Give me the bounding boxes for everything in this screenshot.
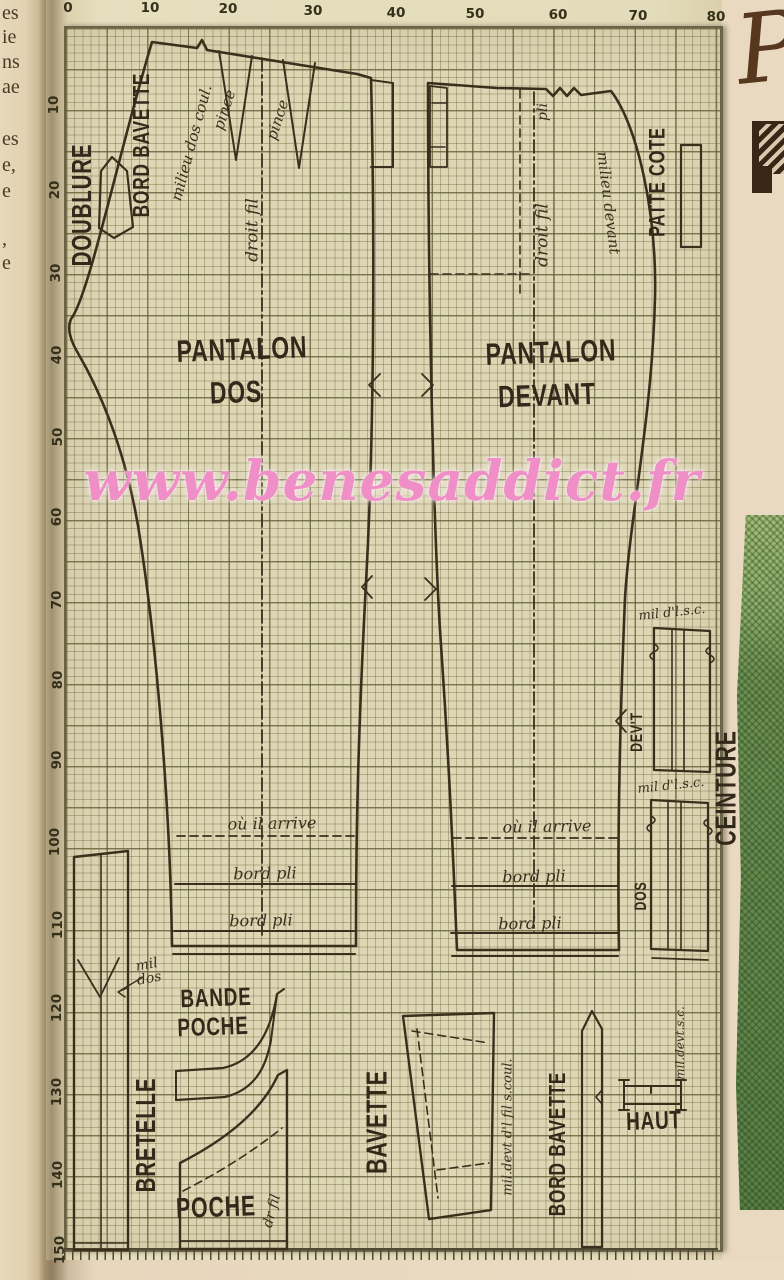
devant-tab-ticks [431,103,446,147]
ruler-left-70: 70 [49,591,65,610]
label-pli: pli [536,103,550,121]
devant-waist-tab [430,86,447,167]
label-bord-bavette-top: BORD BAVETTE [130,73,154,217]
label-mil-devt-coul: mil.devt d'l fil s.coul. [501,1058,514,1195]
label-bord-pli-devant-1: bord pli [502,868,566,885]
ruler-top-30: 30 [304,3,323,19]
label-mil-dos: mil dos [133,956,162,988]
ceinture-dos-inner [668,801,681,950]
label-pantalon-dos-2: DOS [209,376,262,409]
label-doublure: DOUBLURE [69,144,97,267]
page-fragment-3: ae [2,76,20,99]
ruler-left-30: 30 [48,264,64,283]
ruler-left-40: 40 [49,346,65,365]
label-bord-bavette-bottom: BORD BAVETTE [546,1072,570,1216]
ceinture-devant-piece [654,628,710,772]
scanned-pattern-page: Pr DOUBLUREBORD BAVETTEmilieu dos coul.p… [0,0,784,1280]
page-fragment-7: , [2,228,7,251]
label-bord-pli-devant-2: bord pli [498,915,562,932]
watermark-text: www.benesaddict.fr [0,448,784,513]
ceinture-dos-hem [652,958,708,960]
bavette-dash-2 [412,1031,489,1043]
label-pantalon-dos-1: PANTALON [176,332,308,368]
ruler-left-100: 100 [47,828,63,856]
ruler-left-80: 80 [50,671,66,690]
ceinture-dos-notches [647,816,712,835]
label-devt: DEV'T [629,712,646,752]
ruler-left-90: 90 [49,751,65,770]
ruler-top-70: 70 [629,8,648,24]
bretelle-notch [78,958,119,997]
bord-bavette-strip [582,1011,602,1247]
ruler-top-0: 0 [63,0,72,16]
label-bretelle: BRETELLE [133,1078,161,1193]
label-ou-il-arrive-dos: où il arrive [227,815,316,833]
ruler-top-80: 80 [707,9,726,25]
label-pantalon-devant-1: PANTALON [485,335,617,371]
ruler-top-50: 50 [466,6,485,22]
page-fragment-1: ie [2,26,16,49]
ruler-top-20: 20 [219,1,238,17]
label-droit-fil-devant: droit fil [534,203,551,267]
ruler-left-10: 10 [46,96,62,115]
label-mil-devt-sc: mil.devt.s.c. [674,1006,686,1080]
patte-cote-piece [681,145,701,247]
page-fragment-0: es [2,2,19,25]
ruler-top-10: 10 [141,0,160,16]
label-droit-fil-dos: droit fil [244,198,261,262]
ruler-left-130: 130 [49,1078,65,1106]
label-dos-ceinture: DOS [633,881,650,910]
label-bord-pli-dos-2: bord pli [229,912,293,929]
label-bavette: BAVETTE [362,1070,391,1174]
bavette-dash-3 [437,1163,489,1170]
dos-side-tab [371,80,393,167]
ceinture-devant-notches [650,644,714,663]
ruler-left-150: 150 [52,1236,68,1264]
label-pantalon-devant-2: DEVANT [498,379,597,414]
label-bande: BANDE [180,984,252,1012]
ruler-top-40: 40 [387,5,406,21]
page-fragment-5: e, [2,154,16,177]
page-fragment-4: es [2,128,19,151]
label-ceinture: CEINTURE [711,730,740,846]
label-ou-il-arrive-devant: où il arrive [502,818,591,836]
label-bord-pli-dos-1: bord pli [233,865,297,882]
ruler-left-140: 140 [50,1161,66,1189]
ceinture-dos-piece [651,800,708,951]
ruler-left-110: 110 [50,911,66,939]
label-haut: HAUT [626,1107,683,1135]
ruler-left-50: 50 [50,428,66,447]
page-fragment-2: ns [2,51,20,74]
ceinture-devant-inner [672,629,684,771]
bavette-dash-1 [417,1029,438,1198]
poche-fold-dashed [183,1128,282,1191]
label-poche-bande: POCHE [177,1013,249,1041]
ruler-left-20: 20 [47,181,63,200]
notch-dos-hip [369,374,380,396]
page-fragment-8: e [2,252,11,275]
bavette-piece [403,1013,494,1219]
label-poche: POCHE [176,1191,257,1223]
page-fragment-6: e [2,180,11,203]
label-patte-cote: PATTE COTE [647,127,669,237]
ruler-left-120: 120 [49,994,65,1022]
notch-devant-knee [425,578,436,600]
ruler-top-60: 60 [549,7,568,23]
